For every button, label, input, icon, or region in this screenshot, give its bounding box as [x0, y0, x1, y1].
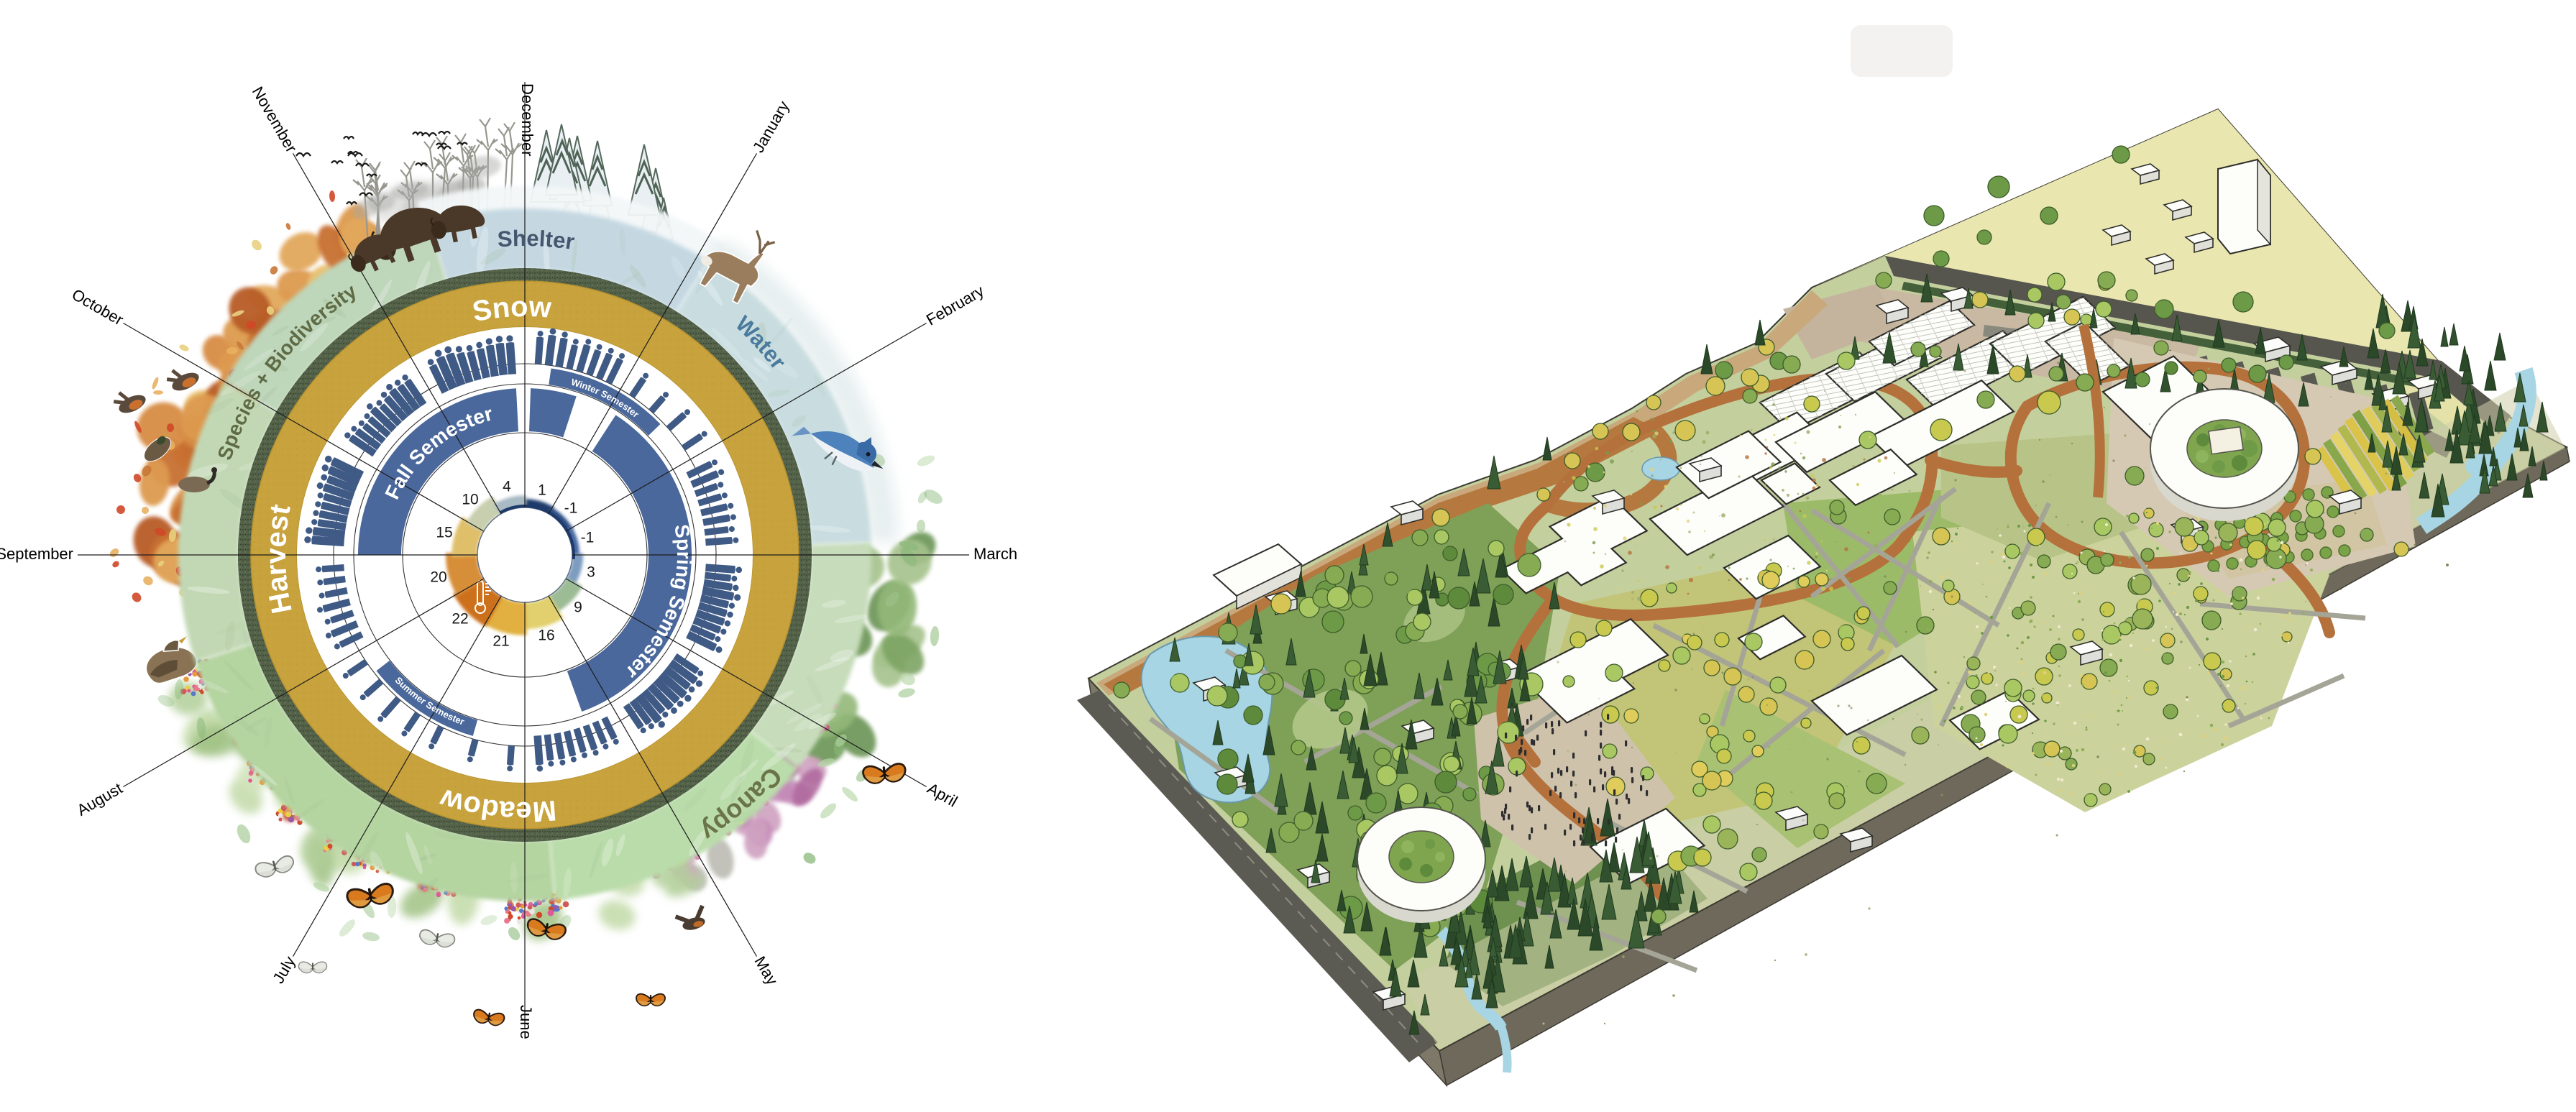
- svg-text:December: December: [518, 83, 536, 156]
- svg-text:20: 20: [430, 569, 446, 586]
- svg-text:16: 16: [538, 628, 554, 644]
- svg-text:4: 4: [503, 479, 511, 495]
- svg-text:9: 9: [574, 599, 582, 616]
- svg-text:15: 15: [436, 525, 452, 541]
- svg-text:Snow: Snow: [470, 291, 553, 328]
- svg-text:June: June: [517, 1005, 535, 1039]
- svg-text:3: 3: [587, 564, 595, 581]
- svg-text:Shelter: Shelter: [497, 226, 577, 254]
- svg-text:March: March: [973, 545, 1017, 563]
- svg-text:21: 21: [492, 633, 509, 650]
- svg-text:-1: -1: [564, 500, 578, 517]
- svg-text:10: 10: [462, 492, 478, 508]
- svg-text:22: 22: [452, 611, 468, 628]
- svg-text:-1: -1: [581, 530, 595, 546]
- svg-text:1: 1: [538, 482, 546, 499]
- svg-text:September: September: [0, 545, 73, 563]
